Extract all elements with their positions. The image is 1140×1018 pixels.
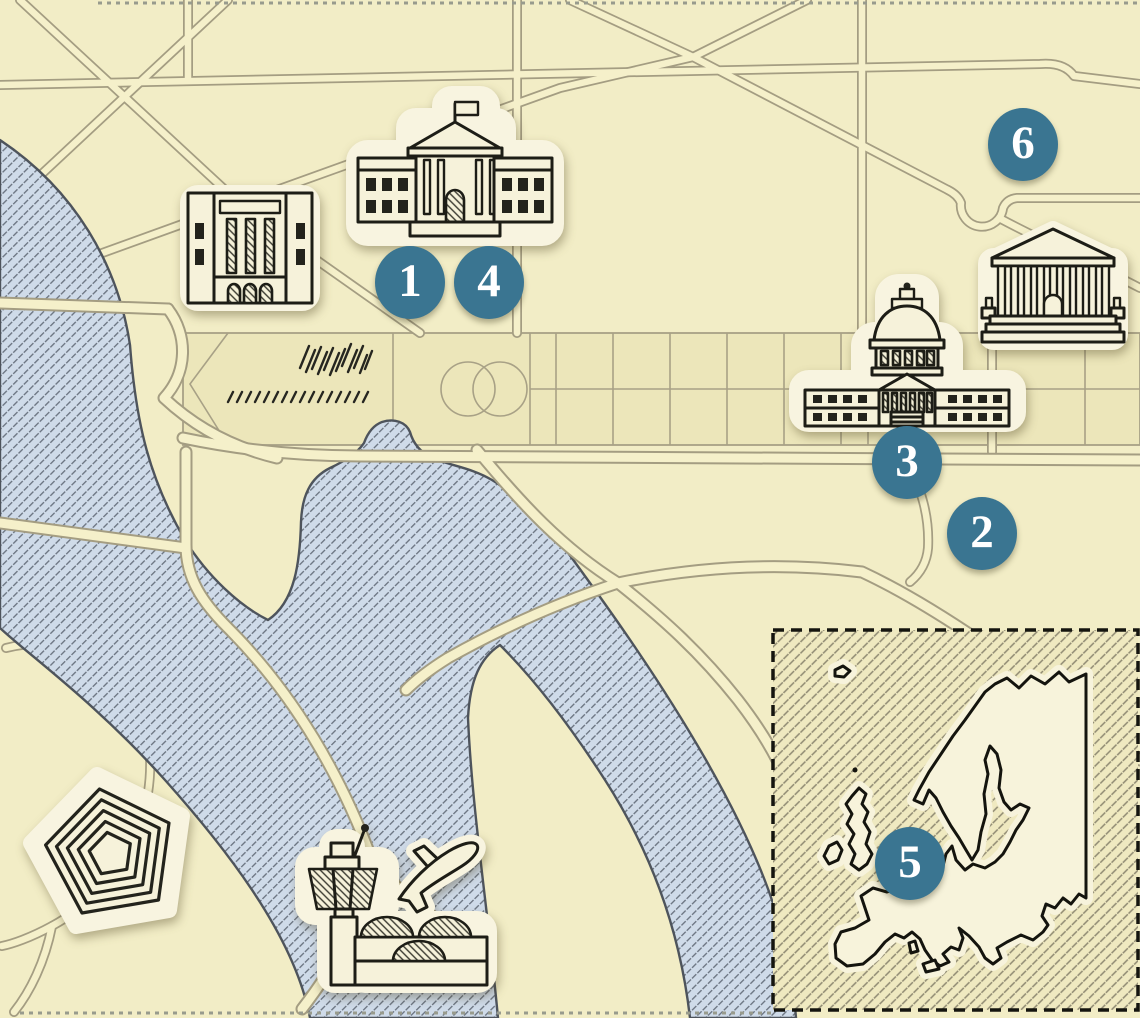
marker-1[interactable]: 1	[375, 246, 445, 319]
classical-building-icon	[188, 193, 312, 303]
map-stage: 123456	[0, 0, 1140, 1018]
supreme-court-icon	[982, 229, 1124, 342]
marker-6[interactable]: 6	[988, 108, 1058, 181]
marker-3[interactable]: 3	[872, 426, 942, 499]
marker-2[interactable]: 2	[947, 497, 1017, 570]
marker-4[interactable]: 4	[454, 246, 524, 319]
marker-5[interactable]: 5	[875, 827, 945, 900]
europe-inset-map	[773, 630, 1138, 1010]
